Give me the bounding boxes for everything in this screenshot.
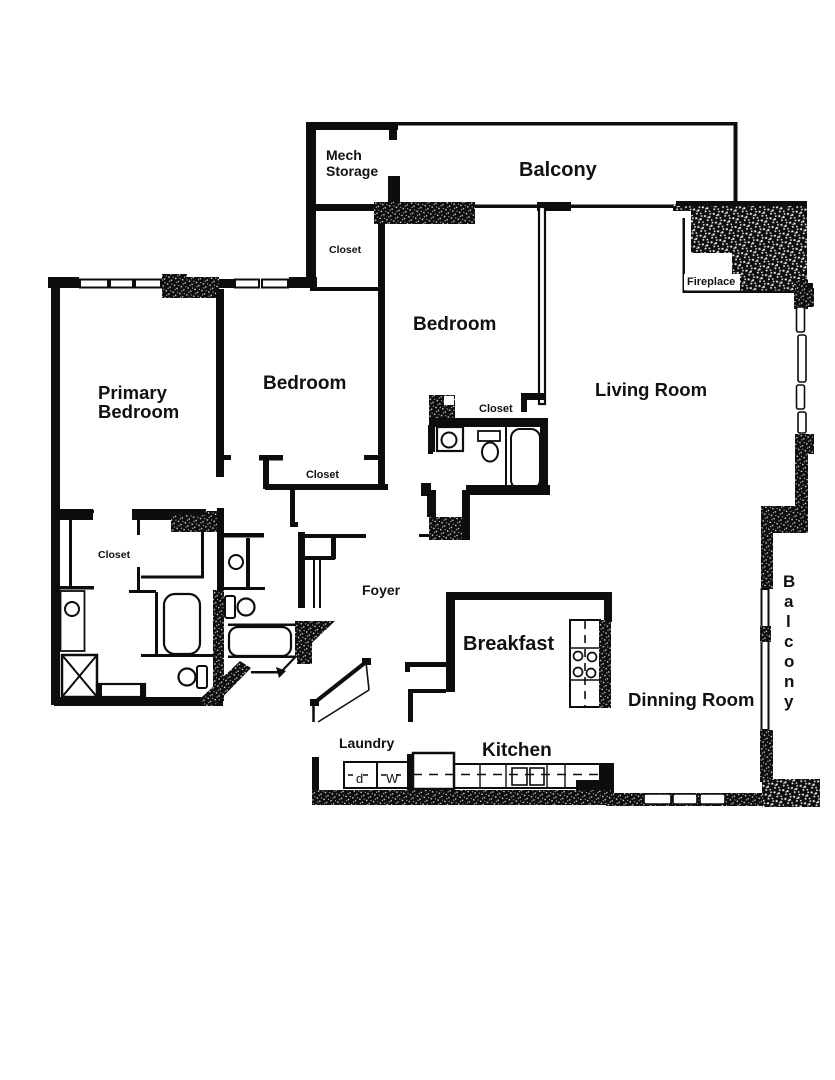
svg-text:Mech: Mech — [326, 147, 362, 163]
svg-text:Closet: Closet — [329, 244, 362, 256]
svg-text:Bedroom: Bedroom — [413, 314, 496, 335]
svg-text:o: o — [784, 652, 794, 671]
svg-text:Bedroom: Bedroom — [263, 373, 346, 394]
svg-text:B: B — [783, 572, 795, 591]
svg-text:Closet: Closet — [306, 469, 339, 481]
svg-text:Fireplace: Fireplace — [687, 276, 735, 288]
svg-text:Foyer: Foyer — [362, 582, 401, 598]
svg-text:Dinning Room: Dinning Room — [628, 689, 754, 710]
svg-text:Laundry: Laundry — [339, 735, 394, 751]
svg-text:a: a — [784, 592, 794, 611]
svg-text:Closet: Closet — [479, 403, 513, 415]
svg-text:Breakfast: Breakfast — [463, 633, 555, 655]
svg-text:Closet: Closet — [98, 549, 131, 561]
svg-text:n: n — [784, 672, 794, 691]
svg-text:d: d — [356, 771, 363, 786]
svg-text:Kitchen: Kitchen — [482, 740, 552, 761]
svg-text:Storage: Storage — [326, 163, 378, 179]
svg-text:W: W — [386, 771, 399, 786]
svg-text:l: l — [786, 612, 791, 631]
svg-text:Bedroom: Bedroom — [98, 401, 179, 422]
svg-text:Primary: Primary — [98, 382, 168, 403]
svg-text:Living Room: Living Room — [595, 379, 707, 400]
svg-text:y: y — [784, 692, 794, 711]
svg-text:Balcony: Balcony — [519, 159, 598, 181]
svg-text:c: c — [784, 632, 793, 651]
